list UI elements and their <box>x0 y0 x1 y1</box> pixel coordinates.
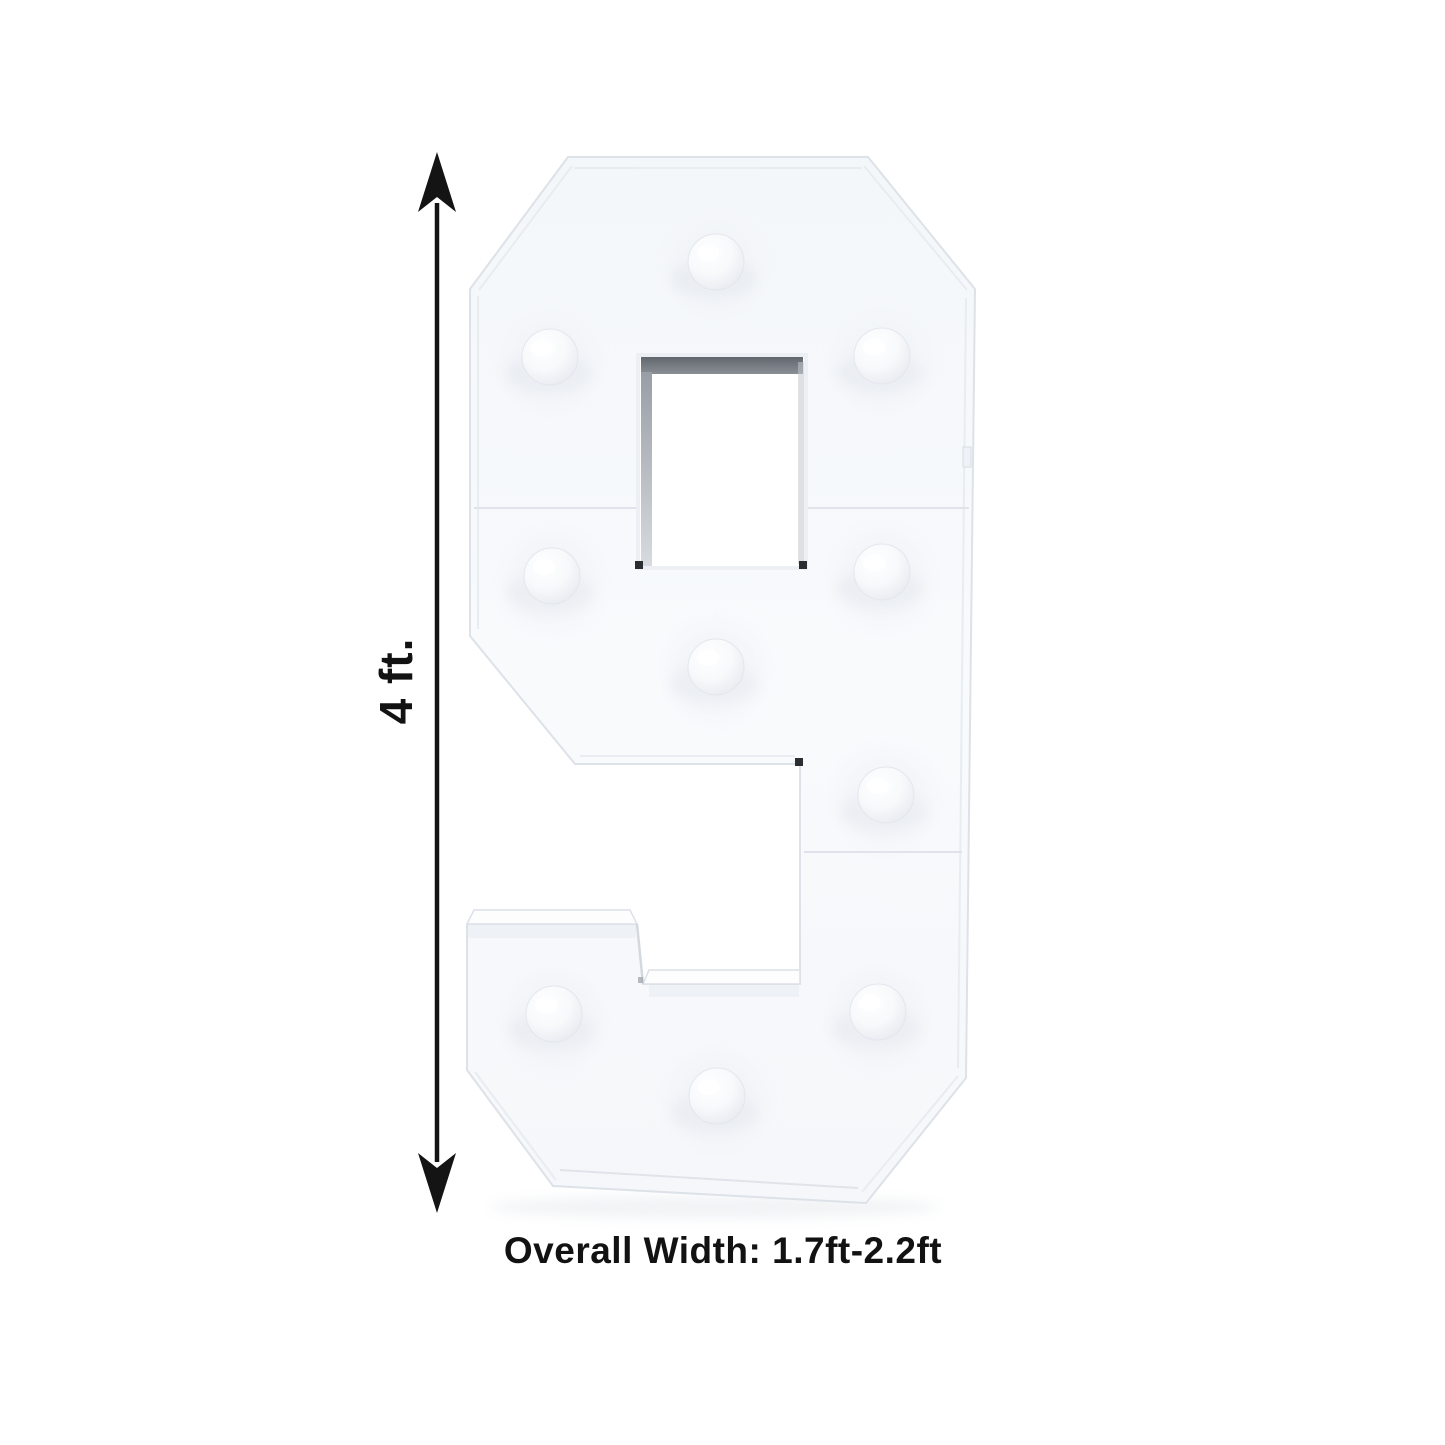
width-dimension-label: Overall Width: 1.7ft-2.2ft <box>504 1230 942 1272</box>
inner-window-left-shadow <box>641 372 652 566</box>
inner-window <box>635 355 807 569</box>
bulb-icon <box>842 756 930 844</box>
bulb-icon <box>834 973 922 1061</box>
bulb-icon <box>673 1057 761 1145</box>
bulb-icon <box>672 223 760 311</box>
bulb-icon <box>510 975 598 1063</box>
figure-artwork <box>0 0 1445 1445</box>
height-dimension-label: 4 ft. <box>368 581 424 781</box>
floor-shadow <box>490 1196 940 1218</box>
inner-window-top-shadow <box>641 357 803 374</box>
marquee-number-9 <box>467 157 975 1218</box>
bulb-icon <box>672 628 760 716</box>
bulb-icon <box>838 533 926 621</box>
inner-window-right-shadow <box>798 362 804 564</box>
bulb-icon <box>506 318 594 406</box>
bulb-icon <box>838 317 926 405</box>
product-dimension-figure: 4 ft. Overall Width: 1.7ft-2.2ft <box>0 0 1445 1445</box>
bulb-icon <box>508 537 596 625</box>
